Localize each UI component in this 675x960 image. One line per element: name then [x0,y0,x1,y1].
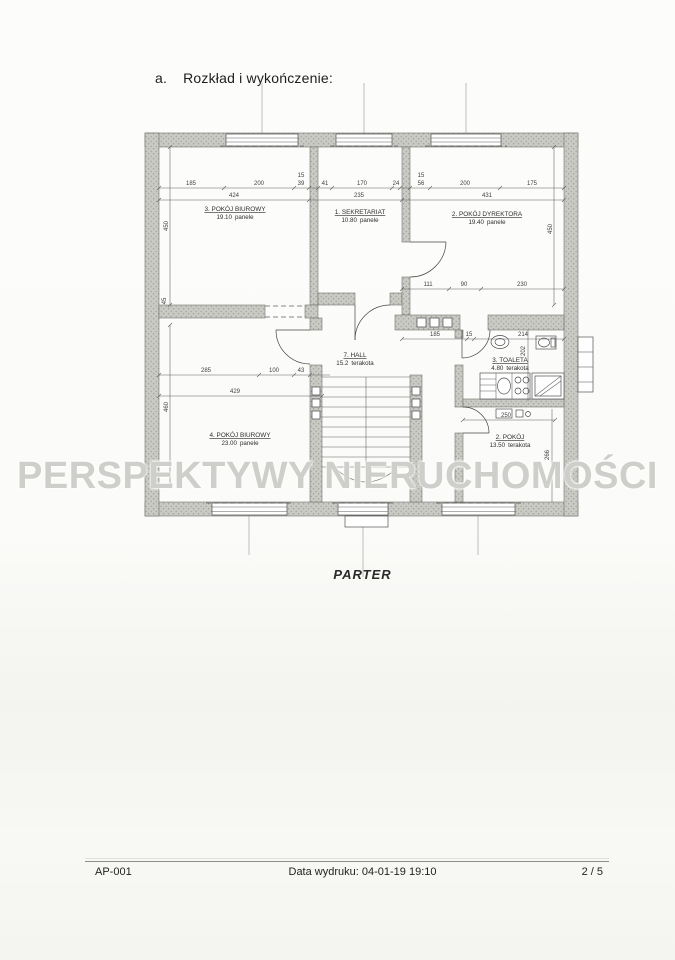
svg-text:7. HALL: 7. HALL [343,352,367,359]
svg-text:19.10panele: 19.10panele [216,214,254,221]
svg-text:3. TOALETA: 3. TOALETA [492,357,528,364]
dim-label: 111 [423,282,433,288]
dim-label: 45 [162,297,168,304]
dim-label: 460 [164,401,170,412]
dim-label: 230 [517,282,528,288]
room-label-room2: 2. POKÓJ 13.50terakota [490,432,531,449]
svg-text:2. POKÓJ DYREKTORA: 2. POKÓJ DYREKTORA [452,209,523,218]
floor-plan-drawing: 185 200 15 39 41 170 24 15 56 200 175 42… [140,70,585,585]
dim-label: 43 [298,368,305,374]
svg-text:2. POKÓJ: 2. POKÓJ [496,432,525,441]
svg-text:15.2terakota: 15.2terakota [336,360,374,367]
dim-label: 185 [430,332,441,338]
floor-caption: PARTER [140,567,585,582]
svg-text:3. POKÓJ BIUROWY: 3. POKÓJ BIUROWY [204,204,266,213]
svg-text:4. POKÓJ BIUROWY: 4. POKÓJ BIUROWY [209,430,271,439]
room-label-toilet: 3. TOALETA 4.80terakota [491,357,529,372]
room-labels: 3. POKÓJ BIUROWY 19.10panele 1. SEKRETAR… [204,204,531,449]
door [355,305,390,340]
dim-label: 250 [501,413,512,419]
room-label-director: 2. POKÓJ DYREKTORA 19.40panele [452,209,523,226]
dim-label: 56 [418,181,425,187]
dim-label: 15 [298,173,305,179]
door [276,330,310,364]
windows-top [220,134,507,146]
dim-label: 200 [254,181,265,187]
dim-label: 450 [548,223,554,234]
window [206,503,293,515]
dim-label: 24 [393,181,400,187]
scanned-document-page: a.Rozkład i wykończenie: [0,0,675,960]
window [332,503,394,515]
dim-label: 41 [322,181,329,187]
dim-label: 200 [460,181,471,187]
window [330,134,398,146]
window [425,134,507,146]
dim-label: 450 [164,220,170,231]
svg-text:1. SEKRETARIAT: 1. SEKRETARIAT [335,209,386,216]
wall-opening-dashed [265,306,305,317]
footer-print-info: Data wydruku: 04-01-19 19:10 [140,866,585,878]
dim-label: 185 [186,181,197,187]
svg-text:4.80terakota: 4.80terakota [491,365,529,372]
room-label-hall: 7. HALL 15.2terakota [336,352,374,367]
dim-label: 214 [518,332,529,338]
window [220,134,304,146]
dim-label: 431 [482,193,493,199]
dim-label: 170 [357,181,368,187]
dim-label: 202 [521,345,527,356]
dim-label: 90 [461,282,468,288]
exterior-porch [345,337,593,527]
dim-label: 15 [418,173,425,179]
toilet-icon [536,336,556,349]
footer-page-number: 2 / 5 [582,866,603,878]
room-label-secretariat: 1. SEKRETARIAT 10.80panele [335,209,386,224]
dim-label: 285 [201,368,212,374]
dim-label: 429 [230,389,241,395]
dim-label: 39 [298,181,305,187]
shower-icon [532,373,564,399]
dim-label: 424 [229,193,240,199]
dim-label: 100 [269,368,280,374]
room-label-office1: 3. POKÓJ BIUROWY 19.10panele [204,204,266,221]
svg-text:13.50terakota: 13.50terakota [490,442,531,449]
footer-divider [85,861,609,862]
svg-text:23.00panele: 23.00panele [221,440,259,447]
washbasin-icon [491,336,509,349]
dim-label: 175 [527,181,538,187]
svg-text:19.40panele: 19.40panele [468,219,506,226]
door [410,242,446,277]
kitchen-counter [480,373,530,399]
dim-label: 235 [354,193,365,199]
agency-watermark: PERSPEKTYWY NIERUCHOMOŚCI [0,455,675,498]
window [436,503,521,515]
dim-label: 15 [466,332,473,338]
room-label-office2: 4. POKÓJ BIUROWY 23.00panele [209,430,271,447]
windows-bottom [206,503,521,515]
footer-doc-id: AP-001 [95,866,132,878]
svg-text:10.80panele: 10.80panele [341,217,379,224]
